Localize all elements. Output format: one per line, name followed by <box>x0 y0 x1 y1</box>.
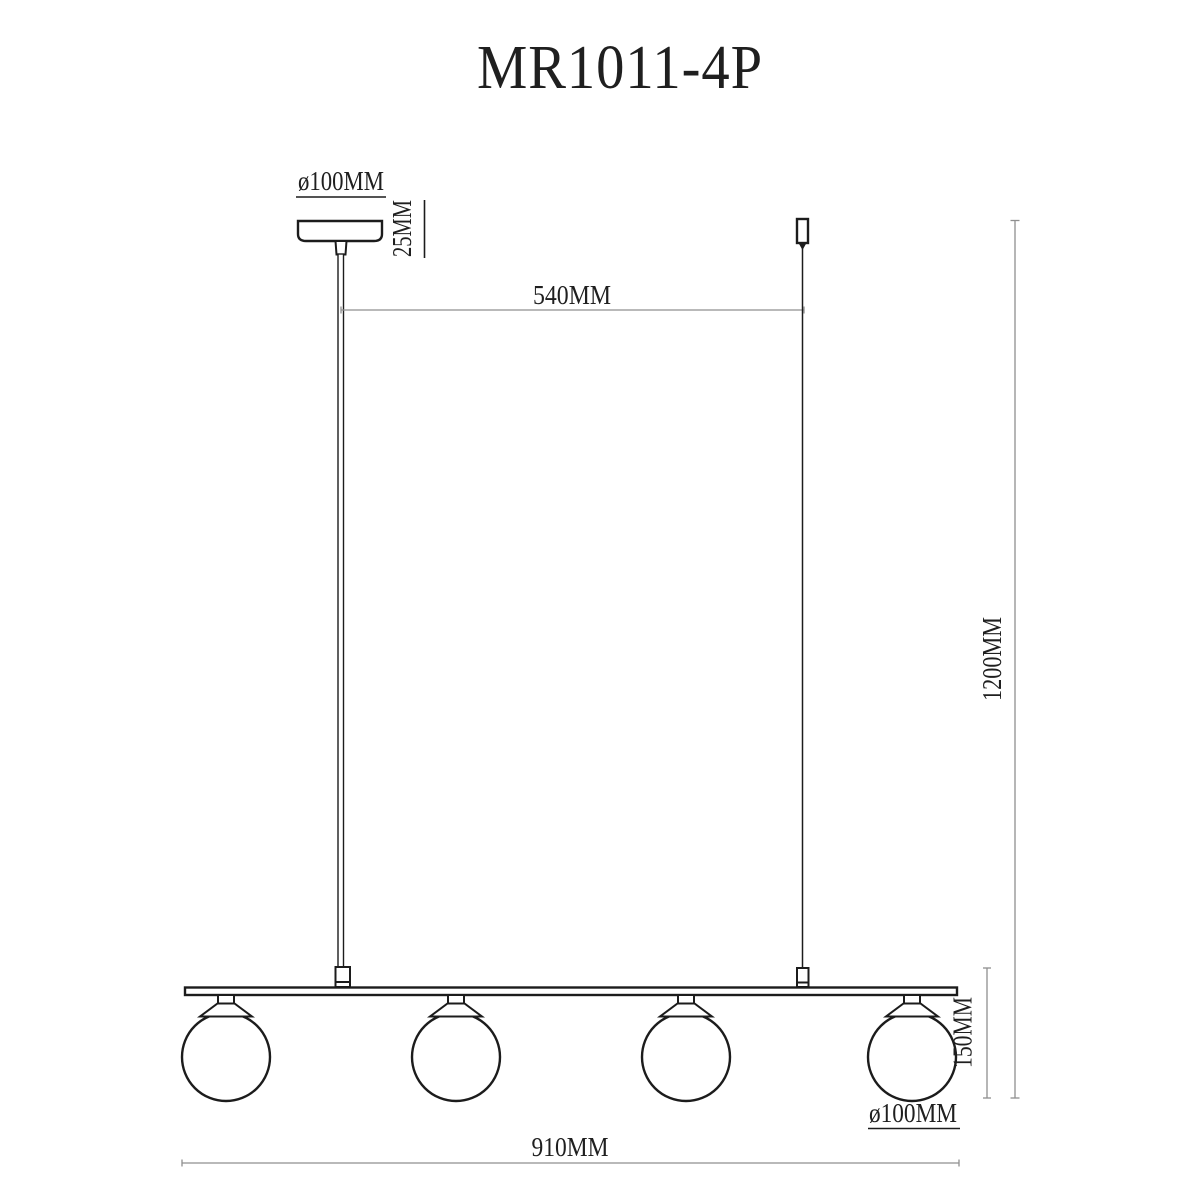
globe-neck <box>678 995 694 1004</box>
dim-overall-height: 1200MM <box>977 221 1020 1099</box>
globe-collar <box>660 1004 712 1017</box>
bar-length-label: 910MM <box>532 1132 609 1162</box>
canopy-diameter-label: ø100MM <box>298 166 384 196</box>
dim-bar-length: 910MM <box>182 1132 959 1167</box>
globe-collar <box>886 1004 938 1017</box>
glass-globe <box>868 1013 956 1101</box>
globe-shade <box>868 995 956 1101</box>
wire-grip <box>797 219 808 250</box>
globe-neck <box>448 995 464 1004</box>
suspension-rod <box>338 254 344 967</box>
suspension-span-label: 540MM <box>533 280 611 310</box>
drawing-canvas: MR1011-4P ø100MM 25MM 540MM 1200MM <box>0 0 1200 1200</box>
overall-height-label: 1200MM <box>977 617 1007 701</box>
globe-shade <box>642 995 730 1101</box>
glass-globe <box>412 1013 500 1101</box>
wire-bar-connector <box>797 968 809 987</box>
dim-canopy-height: 25MM <box>387 200 425 258</box>
globe-collar <box>200 1004 252 1017</box>
glass-globe <box>642 1013 730 1101</box>
shade-height-label: 150MM <box>948 997 978 1068</box>
canopy-body <box>298 221 382 241</box>
canopy-height-label: 25MM <box>387 200 417 257</box>
wire-grip-body <box>797 219 808 243</box>
dim-canopy-diameter: ø100MM <box>296 166 386 197</box>
rod-bar-connector <box>336 967 351 987</box>
glass-globe <box>182 1013 270 1101</box>
dim-shade-diameter: ø100MM <box>868 1098 960 1129</box>
shade-diameter-label: ø100MM <box>869 1098 957 1128</box>
page-title: MR1011-4P <box>477 34 763 102</box>
globe-collar <box>430 1004 482 1017</box>
globe-neck <box>904 995 920 1004</box>
canopy-stem-socket <box>336 241 347 255</box>
technical-drawing: MR1011-4P ø100MM 25MM 540MM 1200MM <box>0 0 1200 1200</box>
fixture-bar <box>185 988 957 996</box>
globe-shade <box>182 995 270 1101</box>
dim-suspension-span: 540MM <box>341 280 804 314</box>
globe-neck <box>218 995 234 1004</box>
globe-shade <box>412 995 500 1101</box>
canopy <box>298 221 382 255</box>
